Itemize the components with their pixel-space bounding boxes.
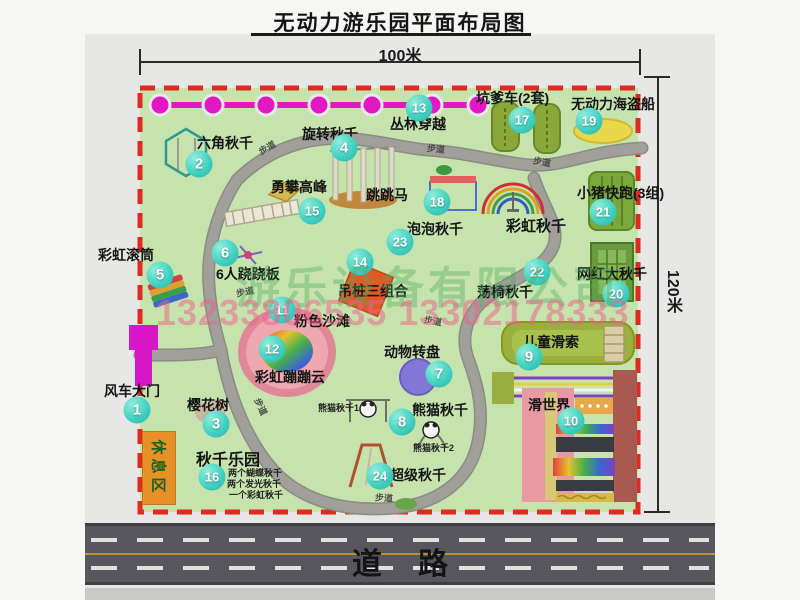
dimension-tick (639, 49, 641, 75)
title-underline (251, 33, 531, 36)
screenshot-stage: 无动力游乐园平面布局图 100米 120米 (0, 0, 800, 600)
rest-area-box: 休息区 (142, 431, 176, 505)
height-dimension-label: 120米 (660, 270, 684, 313)
dimension-tick (139, 49, 141, 75)
road: 道路 (85, 523, 715, 585)
dimension-tick (644, 511, 670, 513)
road-label: 道路 (85, 539, 715, 583)
rest-area-label: 休息区 (149, 439, 170, 496)
dimension-line-right (657, 77, 659, 513)
width-dimension-label: 100米 (340, 42, 460, 66)
dimension-tick (644, 76, 670, 78)
below-road-strip (85, 588, 715, 600)
watermark-phone: 13233806535 13302178333 (156, 292, 629, 334)
